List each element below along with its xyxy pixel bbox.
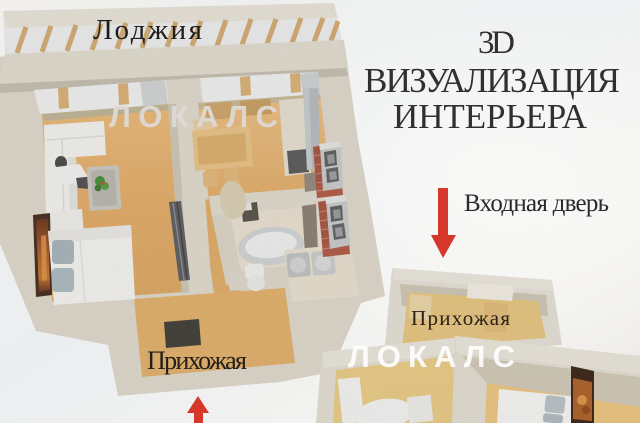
svg-text:3D: 3D: [478, 25, 515, 61]
svg-text:Прихожая: Прихожая: [147, 346, 247, 375]
svg-text:Лоджия: Лоджия: [93, 14, 202, 46]
svg-text:Входная дверь: Входная дверь: [464, 190, 609, 217]
svg-text:ВИЗУАЛИЗАЦИЯ: ВИЗУАЛИЗАЦИЯ: [364, 61, 620, 100]
svg-text:Прихожая: Прихожая: [411, 306, 510, 330]
svg-text:ИНТЕРЬЕРА: ИНТЕРЬЕРА: [393, 97, 588, 136]
